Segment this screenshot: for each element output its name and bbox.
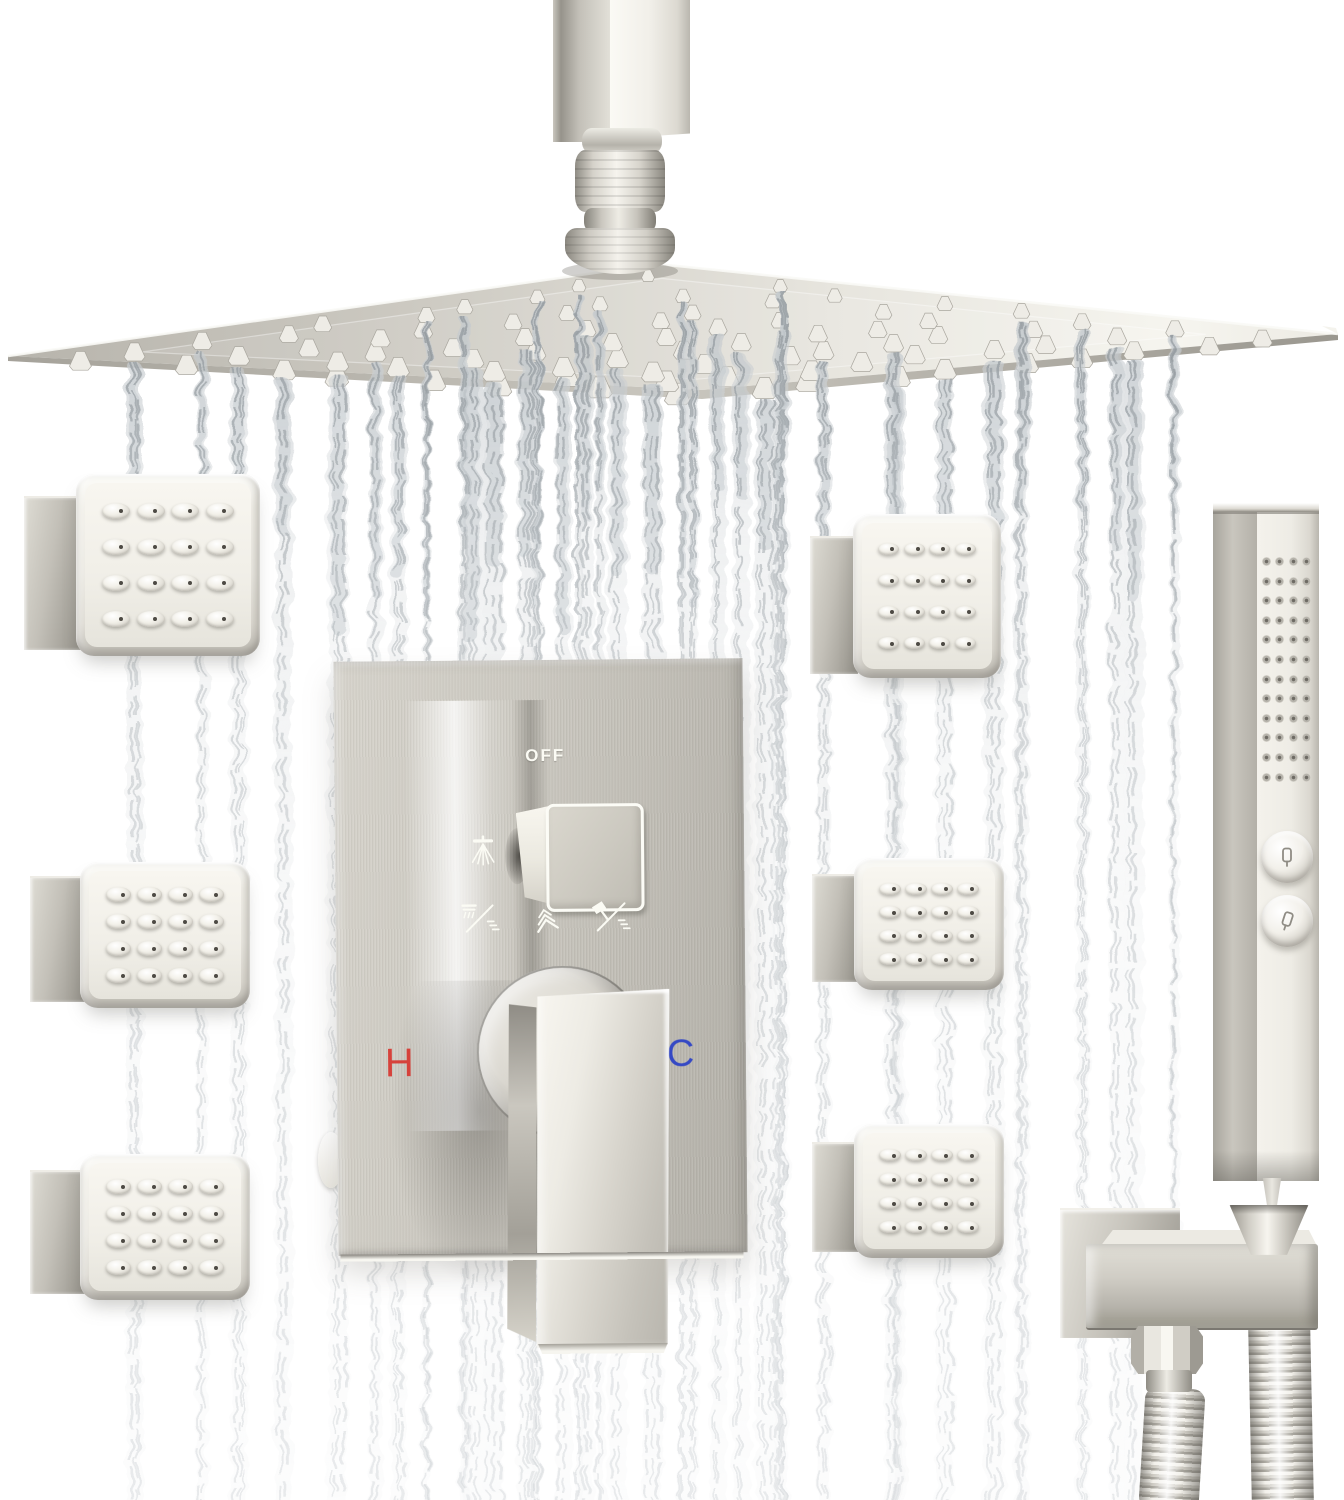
jet-nozzle-hole: [890, 579, 894, 583]
jet-nozzle-hole: [970, 1154, 974, 1158]
jet-nozzle-hole: [941, 642, 945, 646]
ceiling-arm-side-face: [553, 0, 610, 142]
jet-face: [85, 483, 251, 647]
temperature-lever-side: [504, 1004, 539, 1342]
jet-nozzle-hole: [152, 1212, 156, 1216]
jet-nozzle-hole: [121, 947, 125, 951]
jet-nozzle: [137, 503, 165, 519]
jet-nozzle-hole: [892, 958, 896, 962]
wand-nozzle: [1289, 714, 1298, 723]
jet-nozzle-hole: [918, 1178, 922, 1182]
arm-connector-cylinder: [575, 150, 665, 212]
wand-glyph-icon: [1275, 845, 1299, 869]
jet-nozzle: [168, 1233, 193, 1248]
jet-nozzle: [931, 953, 952, 965]
shower-hose-wand: [1248, 1315, 1314, 1500]
jet-nozzle: [879, 953, 900, 965]
jet-nozzle: [199, 1233, 224, 1248]
jet-nozzle-hole: [188, 581, 192, 585]
jet-nozzle-hole: [121, 893, 125, 897]
jet-nozzle: [168, 887, 193, 902]
jet-nozzle: [106, 914, 131, 929]
jet-nozzle: [206, 575, 234, 591]
jet-nozzle-hole: [892, 887, 896, 891]
jet-nozzle-hole: [918, 911, 922, 915]
jet-nozzle-hole: [119, 581, 123, 585]
jet-nozzle-hole: [944, 1178, 948, 1182]
jet-nozzle: [957, 1149, 978, 1161]
jet-face: [89, 871, 241, 999]
body-spray-jet: [80, 862, 250, 1008]
jet-nozzle: [904, 574, 925, 586]
jet-nozzle: [137, 1206, 162, 1221]
jet-nozzle-hole: [188, 509, 192, 513]
shower-hose-supply: [1138, 1386, 1205, 1500]
jet-nozzle-hole: [944, 1226, 948, 1230]
jet-nozzle-hole: [970, 958, 974, 962]
jet-nozzle-hole: [119, 617, 123, 621]
jet-nozzle: [957, 883, 978, 895]
wand-nozzle: [1302, 675, 1311, 684]
jet-nozzle: [904, 543, 925, 555]
jet-nozzle: [137, 968, 162, 983]
jet-nozzle-hole: [183, 1266, 187, 1270]
jet-nozzle-hole: [214, 1212, 218, 1216]
hose-collar: [1146, 1370, 1192, 1392]
jet-nozzle: [168, 1260, 193, 1275]
jet-nozzle: [905, 1197, 926, 1209]
wand-nozzle: [1289, 753, 1298, 762]
jet-nozzle-hole: [214, 1239, 218, 1243]
handheld-shower: [1213, 503, 1319, 1181]
jet-nozzle: [905, 1221, 926, 1233]
jet-nozzle: [102, 575, 130, 591]
jet-nozzle: [878, 543, 899, 555]
jet-nozzle: [206, 611, 234, 627]
jet-nozzle-hole: [188, 545, 192, 549]
jet-nozzle: [905, 930, 926, 942]
wand-nozzle: [1289, 616, 1298, 625]
jet-nozzle-hole: [890, 610, 894, 614]
jet-nozzle: [137, 1260, 162, 1275]
water-stream: [755, 400, 775, 1500]
jet-nozzle-hole: [119, 545, 123, 549]
jet-nozzle: [904, 606, 925, 618]
jet-nozzle: [206, 503, 234, 519]
jet-nozzle-hole: [222, 545, 226, 549]
jet-nozzle: [957, 930, 978, 942]
jet-nozzle: [957, 953, 978, 965]
wand-nozzle: [1262, 577, 1271, 586]
jet-nozzle: [199, 1179, 224, 1194]
water-stream: [1015, 319, 1028, 1500]
jet-nozzle: [878, 574, 899, 586]
jet-nozzle: [957, 1173, 978, 1185]
jet-nozzle-hole: [121, 1266, 125, 1270]
jet-nozzle-hole: [152, 893, 156, 897]
off-label: OFF: [505, 746, 585, 767]
temperature-lever-end-cap: [535, 1343, 670, 1354]
jet-nozzle: [955, 606, 976, 618]
jet-nozzle-hole: [967, 579, 971, 583]
jet-nozzle: [955, 543, 976, 555]
jet-nozzle: [106, 1233, 131, 1248]
jet-nozzle: [931, 906, 952, 918]
jet-nozzle: [878, 637, 899, 649]
jet-nozzle: [879, 1221, 900, 1233]
wand-nozzle: [1302, 577, 1311, 586]
jet-nozzle: [106, 887, 131, 902]
jet-nozzle-hole: [183, 974, 187, 978]
wand-bottom-shade: [1213, 1151, 1319, 1181]
body-jets-mode-icon: [523, 898, 567, 934]
ceiling-arm-front-face: [610, 0, 690, 139]
jet-nozzle-hole: [967, 547, 971, 551]
jet-nozzle: [171, 539, 199, 555]
jet-nozzle: [931, 1149, 952, 1161]
jet-nozzle-hole: [222, 509, 226, 513]
jet-nozzle-hole: [214, 947, 218, 951]
jet-nozzle-hole: [119, 509, 123, 513]
jet-nozzle: [957, 1221, 978, 1233]
jet-nozzle: [106, 1179, 131, 1194]
jet-nozzle: [199, 887, 224, 902]
jet-nozzle: [931, 1173, 952, 1185]
jet-wall-mount: [812, 874, 860, 982]
wand-nozzle: [1289, 675, 1298, 684]
jet-nozzle-hole: [214, 974, 218, 978]
jet-nozzle-hole: [183, 1239, 187, 1243]
wand-nozzle: [1262, 753, 1271, 762]
jet-nozzle: [931, 1221, 952, 1233]
jet-nozzle-hole: [944, 958, 948, 962]
jet-nozzle-hole: [214, 1266, 218, 1270]
jet-nozzle: [137, 1179, 162, 1194]
temperature-lever: [533, 989, 672, 1348]
jet-nozzle: [137, 611, 165, 627]
jet-wall-mount: [30, 876, 86, 1002]
wand-nozzle: [1275, 577, 1284, 586]
jet-nozzle-hole: [183, 920, 187, 924]
jet-nozzle: [106, 968, 131, 983]
jet-nozzle: [137, 887, 162, 902]
jet-nozzle: [171, 503, 199, 519]
jet-nozzle-hole: [967, 610, 971, 614]
jet-nozzle: [905, 883, 926, 895]
jet-nozzle-hole: [153, 509, 157, 513]
jet-nozzle: [929, 574, 950, 586]
jet-nozzle-hole: [214, 1185, 218, 1189]
jet-nozzle-hole: [892, 1154, 896, 1158]
jet-nozzle: [904, 637, 925, 649]
wand-nozzle: [1302, 714, 1311, 723]
wand-nozzle: [1262, 773, 1271, 782]
jet-nozzle-hole: [918, 887, 922, 891]
jet-wall-mount: [24, 496, 82, 650]
jet-nozzle-hole: [152, 947, 156, 951]
jet-nozzle: [168, 1179, 193, 1194]
jet-nozzle: [102, 503, 130, 519]
jet-nozzle: [931, 1197, 952, 1209]
jet-nozzle-hole: [916, 642, 920, 646]
jet-nozzle-hole: [183, 947, 187, 951]
jet-nozzle-hole: [944, 934, 948, 938]
handheld-over-jets-mode-icon: [587, 897, 631, 933]
body-spray-jet: [854, 1124, 1004, 1258]
jet-nozzle-hole: [153, 545, 157, 549]
handheld-mode-button-bottom: [1261, 895, 1313, 947]
jet-nozzle-hole: [941, 547, 945, 551]
jet-nozzle-hole: [892, 1226, 896, 1230]
jet-nozzle-hole: [916, 610, 920, 614]
jet-nozzle-hole: [970, 911, 974, 915]
jet-nozzle: [137, 941, 162, 956]
jet-face: [863, 867, 995, 981]
jet-nozzle-hole: [121, 974, 125, 978]
holder-arm: [1086, 1244, 1318, 1330]
water-stream: [777, 293, 785, 1500]
body-spray-jet: [853, 514, 1001, 678]
jet-nozzle: [879, 1173, 900, 1185]
wand-nozzle: [1289, 694, 1298, 703]
jet-nozzle: [879, 1197, 900, 1209]
jet-nozzle: [106, 941, 131, 956]
jet-nozzle: [879, 883, 900, 895]
jet-nozzle: [931, 883, 952, 895]
jet-nozzle-hole: [222, 581, 226, 585]
jet-nozzle: [879, 1149, 900, 1161]
jet-nozzle: [199, 914, 224, 929]
jet-nozzle-hole: [214, 893, 218, 897]
jet-nozzle: [879, 906, 900, 918]
jet-nozzle-hole: [918, 958, 922, 962]
jet-nozzle-hole: [918, 1202, 922, 1206]
jet-nozzle: [957, 906, 978, 918]
wand-top-cap: [1213, 503, 1319, 512]
jet-wall-mount: [30, 1170, 86, 1294]
jet-nozzle-hole: [890, 642, 894, 646]
jet-nozzle-hole: [152, 1266, 156, 1270]
jet-nozzle-hole: [892, 1202, 896, 1206]
jet-wall-mount: [812, 1142, 860, 1252]
jet-nozzle: [206, 539, 234, 555]
jet-nozzle-hole: [152, 974, 156, 978]
cold-label: C: [667, 1033, 695, 1076]
jet-nozzle: [199, 1260, 224, 1275]
jet-nozzle: [878, 606, 899, 618]
jet-nozzle-hole: [892, 1178, 896, 1182]
jet-nozzle: [929, 543, 950, 555]
wand-nozzle: [1262, 675, 1271, 684]
jet-nozzle-hole: [944, 911, 948, 915]
jet-nozzle: [168, 914, 193, 929]
wand-nozzle: [1289, 596, 1298, 605]
jet-nozzle-hole: [222, 617, 226, 621]
jet-nozzle-hole: [121, 1185, 125, 1189]
jet-nozzle-hole: [153, 617, 157, 621]
jet-nozzle-hole: [916, 547, 920, 551]
wand-nozzle: [1302, 616, 1311, 625]
jet-nozzle-hole: [970, 1226, 974, 1230]
jet-nozzle: [137, 575, 165, 591]
jet-nozzle: [171, 575, 199, 591]
wand-nozzle: [1275, 675, 1284, 684]
jet-nozzle-hole: [214, 920, 218, 924]
jet-nozzle-hole: [944, 1154, 948, 1158]
jet-nozzle-hole: [121, 920, 125, 924]
rain-spray-icon: [465, 834, 501, 868]
jet-face: [862, 523, 992, 669]
jet-nozzle-hole: [941, 579, 945, 583]
wand-nozzle: [1262, 655, 1271, 664]
wand-nozzle: [1275, 773, 1284, 782]
wand-nozzle: [1262, 714, 1271, 723]
jet-nozzle-hole: [892, 911, 896, 915]
jet-nozzle-hole: [121, 1212, 125, 1216]
jet-nozzle: [199, 1206, 224, 1221]
wand-nozzle: [1262, 557, 1271, 566]
jet-nozzle-hole: [121, 1239, 125, 1243]
jet-nozzle-hole: [188, 617, 192, 621]
wand-side-face: [1213, 505, 1257, 1181]
jet-nozzle-hole: [944, 1202, 948, 1206]
jet-face: [89, 1163, 241, 1291]
jet-nozzle-hole: [918, 1154, 922, 1158]
jet-nozzle: [905, 953, 926, 965]
jet-nozzle-hole: [152, 1239, 156, 1243]
jet-nozzle-hole: [970, 1178, 974, 1182]
wand-cap-seam: [1213, 512, 1319, 514]
valve-trim-plate: OFF: [333, 658, 747, 1256]
jet-nozzle: [102, 611, 130, 627]
jet-nozzle: [137, 914, 162, 929]
wand-nozzle: [1289, 577, 1298, 586]
jet-nozzle: [168, 1206, 193, 1221]
jet-face: [863, 1133, 995, 1249]
jet-nozzle: [199, 941, 224, 956]
wand-nozzle: [1302, 773, 1311, 782]
jet-nozzle-hole: [918, 1226, 922, 1230]
jet-nozzle-hole: [941, 610, 945, 614]
jet-nozzle-hole: [153, 581, 157, 585]
jet-nozzle-hole: [183, 1185, 187, 1189]
jet-nozzle: [171, 611, 199, 627]
jet-nozzle-hole: [944, 887, 948, 891]
body-spray-jet: [76, 474, 260, 656]
jet-nozzle-hole: [970, 887, 974, 891]
rain-over-jets-mode-icon: [457, 898, 501, 934]
wand-nozzle: [1262, 616, 1271, 625]
body-spray-jet: [80, 1154, 250, 1300]
jet-wall-mount: [810, 536, 858, 674]
wand-nozzle: [1289, 655, 1298, 664]
jet-nozzle: [879, 930, 900, 942]
jet-nozzle: [905, 906, 926, 918]
jet-nozzle: [106, 1260, 131, 1275]
jet-nozzle: [199, 968, 224, 983]
jet-nozzle-hole: [183, 1212, 187, 1216]
jet-nozzle-hole: [918, 934, 922, 938]
jet-nozzle: [102, 539, 130, 555]
jet-nozzle-hole: [890, 547, 894, 551]
jet-nozzle-hole: [152, 920, 156, 924]
jet-nozzle-hole: [970, 1202, 974, 1206]
body-spray-jet: [854, 858, 1004, 990]
jet-nozzle: [955, 637, 976, 649]
handheld-mode-button-top: [1261, 831, 1313, 883]
jet-nozzle-hole: [152, 1185, 156, 1189]
jet-nozzle: [957, 1197, 978, 1209]
jet-nozzle: [106, 1206, 131, 1221]
jet-nozzle: [905, 1149, 926, 1161]
jet-nozzle: [929, 606, 950, 618]
jet-nozzle: [905, 1173, 926, 1185]
wand-nozzle: [1289, 557, 1298, 566]
jet-nozzle: [168, 941, 193, 956]
water-stream: [276, 381, 293, 1500]
jet-nozzle: [137, 1233, 162, 1248]
jet-nozzle: [955, 574, 976, 586]
jet-nozzle-hole: [183, 893, 187, 897]
jet-nozzle: [929, 637, 950, 649]
jet-nozzle-hole: [970, 934, 974, 938]
shower-system-product-photo: OFF: [0, 0, 1344, 1500]
jet-nozzle-hole: [967, 642, 971, 646]
wand-tilted-glyph-icon: [1275, 909, 1299, 933]
diverter-knob: [546, 803, 645, 912]
hose-hex-nut: [1131, 1326, 1203, 1374]
jet-nozzle: [137, 539, 165, 555]
jet-nozzle: [931, 930, 952, 942]
jet-nozzle-hole: [916, 579, 920, 583]
jet-nozzle: [168, 968, 193, 983]
wand-nozzle: [1289, 773, 1298, 782]
jet-nozzle-hole: [892, 934, 896, 938]
hot-label: H: [385, 1041, 414, 1086]
